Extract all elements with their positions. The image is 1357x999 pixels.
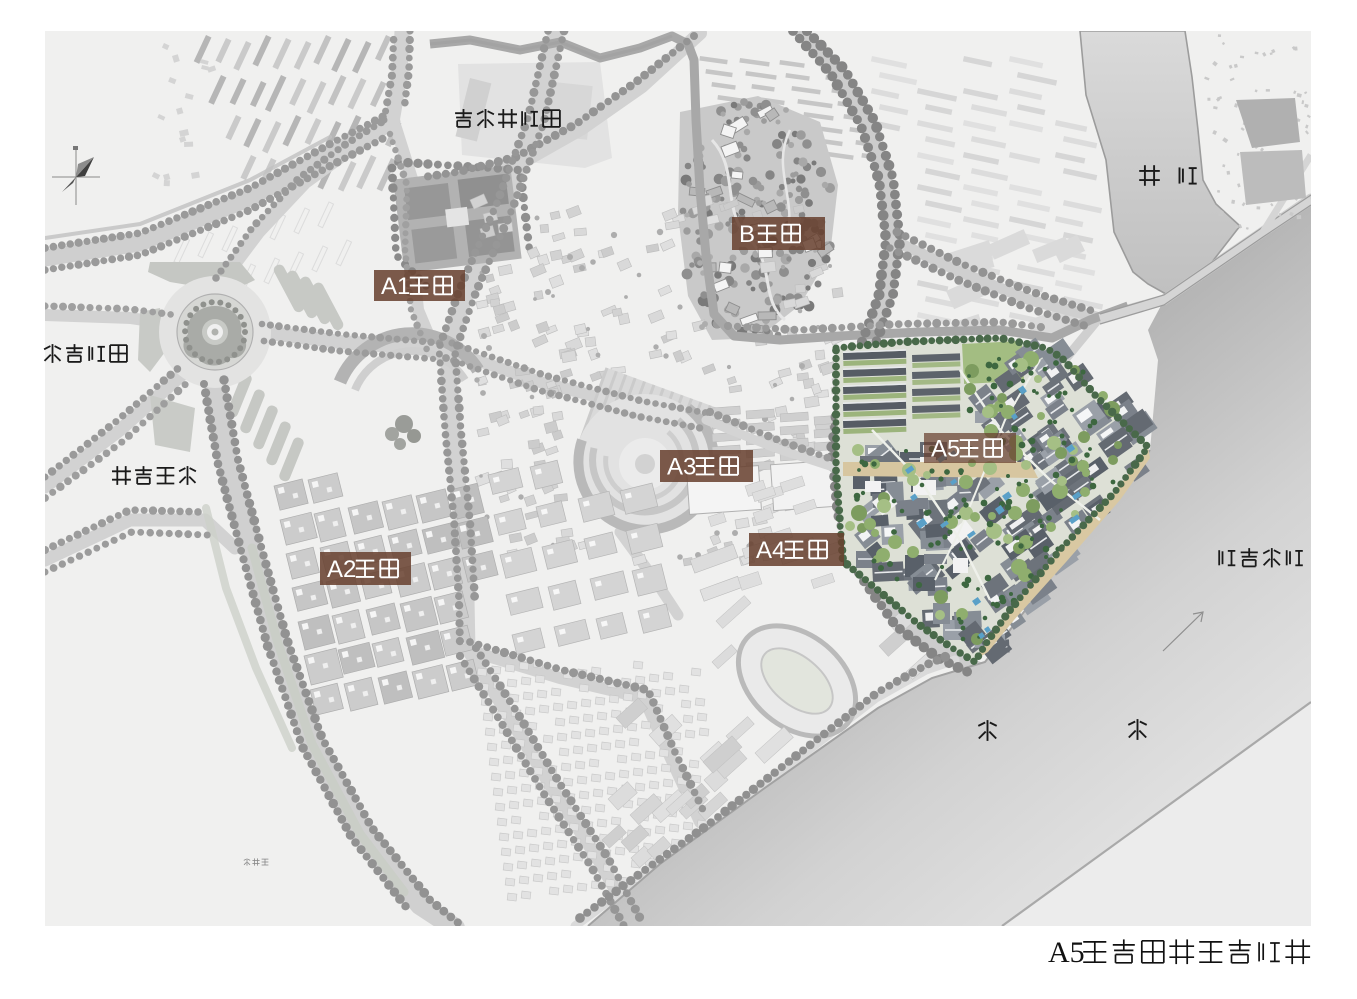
svg-text:A3: A3 [667,453,696,480]
svg-text:A5: A5 [931,435,960,462]
svg-text:B: B [739,221,755,248]
svg-text:A4: A4 [756,537,785,564]
svg-text:A1: A1 [381,273,410,300]
svg-text:A5: A5 [1048,936,1085,969]
svg-text:A2: A2 [327,556,356,583]
